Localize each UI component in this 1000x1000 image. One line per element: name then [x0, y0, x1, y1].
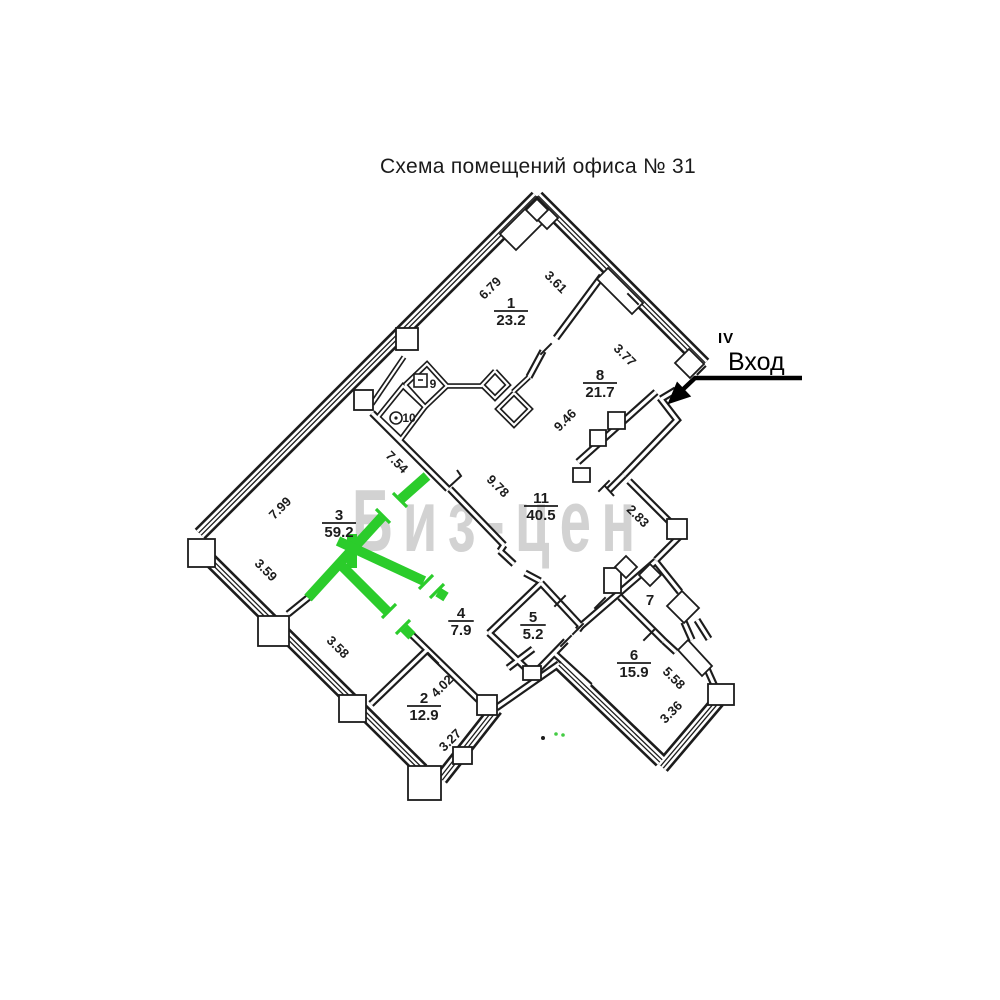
svg-text:23.2: 23.2 [496, 312, 525, 329]
svg-text:15.9: 15.9 [619, 664, 648, 681]
svg-text:7.99: 7.99 [266, 494, 295, 523]
svg-text:7.9: 7.9 [451, 622, 472, 639]
svg-text:3.61: 3.61 [542, 268, 571, 297]
svg-text:3: 3 [335, 507, 343, 524]
svg-text:5: 5 [529, 609, 537, 626]
svg-text:7: 7 [646, 592, 654, 609]
svg-text:3.58: 3.58 [324, 633, 353, 662]
svg-text:10: 10 [402, 411, 416, 425]
svg-text:3.36: 3.36 [657, 698, 686, 727]
svg-text:Вход: Вход [728, 348, 785, 376]
svg-text:2: 2 [420, 690, 428, 707]
svg-text:9: 9 [430, 377, 437, 391]
svg-text:5.58: 5.58 [660, 664, 689, 693]
svg-text:21.7: 21.7 [585, 384, 614, 401]
svg-text:3.77: 3.77 [611, 341, 640, 370]
svg-text:9.46: 9.46 [551, 406, 580, 435]
svg-text:IV: IV [718, 330, 734, 347]
svg-text:5.2: 5.2 [523, 626, 544, 643]
svg-text:59.2: 59.2 [324, 524, 353, 541]
svg-text:40.5: 40.5 [526, 507, 555, 524]
svg-text:6.79: 6.79 [476, 274, 505, 303]
svg-text:8: 8 [596, 367, 604, 384]
svg-text:4: 4 [457, 605, 466, 622]
svg-text:1: 1 [507, 295, 515, 312]
svg-text:11: 11 [533, 490, 549, 507]
svg-text:2.83: 2.83 [624, 502, 653, 531]
svg-text:6: 6 [630, 647, 638, 664]
svg-text:3.59: 3.59 [252, 556, 281, 585]
svg-text:12.9: 12.9 [409, 707, 438, 724]
svg-text:9.78: 9.78 [484, 472, 513, 501]
